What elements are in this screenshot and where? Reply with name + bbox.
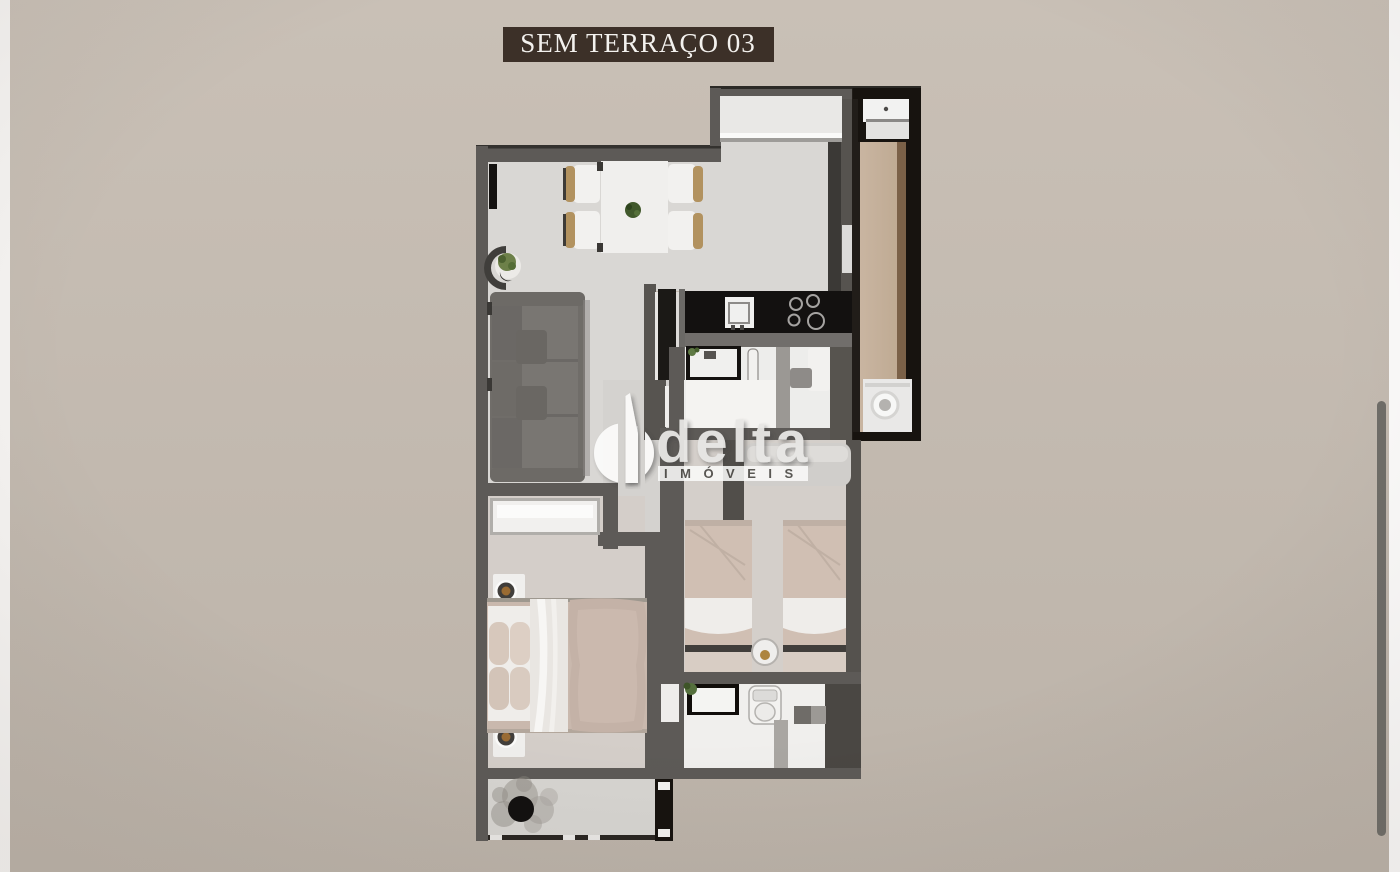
svg-text:IMÓVEIS: IMÓVEIS	[664, 466, 806, 481]
